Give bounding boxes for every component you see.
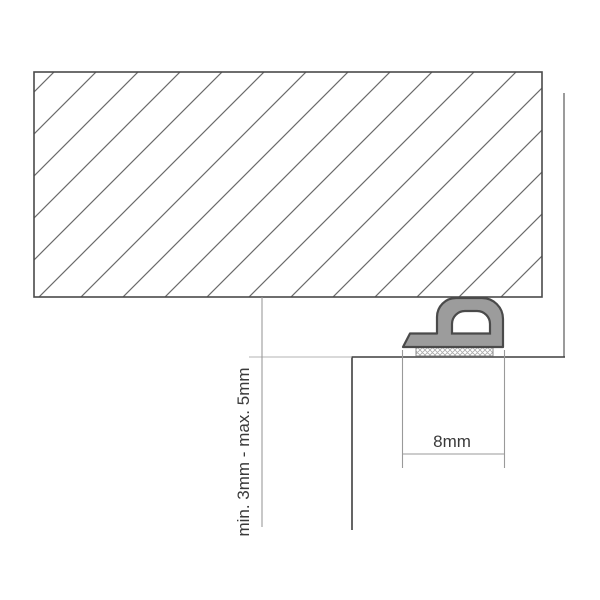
seal-inner-hole: [452, 311, 490, 334]
width-dimension-label: 8mm: [433, 432, 471, 451]
adhesive-strip: [416, 348, 493, 357]
diagram-container: min. 3mm - max. 5mm 8mm: [0, 0, 600, 600]
frame-cross-section: [34, 72, 542, 297]
gap-dimension-label: min. 3mm - max. 5mm: [234, 367, 253, 536]
seal-cross-section-diagram: min. 3mm - max. 5mm 8mm: [0, 0, 600, 600]
